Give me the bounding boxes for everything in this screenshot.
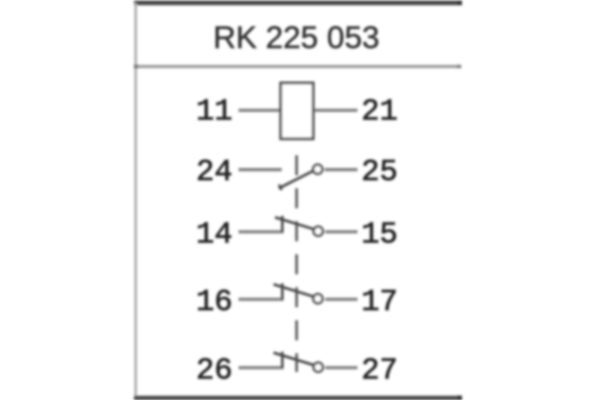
svg-text:14: 14 bbox=[196, 218, 233, 252]
svg-text:RK 225 053: RK 225 053 bbox=[213, 19, 379, 55]
svg-text:17: 17 bbox=[361, 286, 398, 320]
svg-text:15: 15 bbox=[361, 218, 398, 252]
svg-text:16: 16 bbox=[196, 286, 233, 320]
svg-text:26: 26 bbox=[196, 354, 233, 388]
svg-text:21: 21 bbox=[361, 96, 398, 130]
svg-text:24: 24 bbox=[196, 156, 233, 190]
svg-text:25: 25 bbox=[361, 156, 398, 190]
svg-text:11: 11 bbox=[196, 96, 233, 130]
svg-text:27: 27 bbox=[361, 354, 398, 388]
